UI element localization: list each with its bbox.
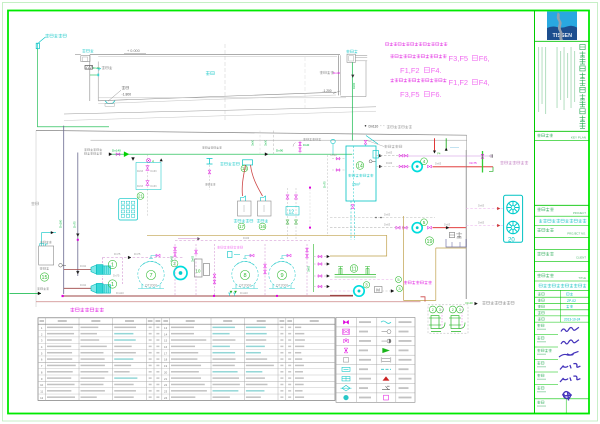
svg-text:F3,F5: F3,F5	[449, 54, 469, 63]
svg-text:Dn63: Dn63	[386, 161, 393, 165]
svg-text:Dn63: Dn63	[192, 255, 195, 262]
svg-text:Dn63: Dn63	[444, 222, 451, 226]
svg-text:Dn63: Dn63	[151, 170, 158, 173]
svg-text:Dn110: Dn110	[240, 291, 248, 295]
svg-text:15: 15	[42, 275, 48, 281]
svg-text:23: 23	[164, 389, 168, 393]
svg-text:15: 15	[164, 339, 168, 343]
svg-text:F1,F2: F1,F2	[449, 78, 469, 87]
svg-text:19: 19	[427, 239, 433, 245]
svg-text:Dn63: Dn63	[151, 185, 158, 188]
svg-text:22: 22	[164, 383, 168, 387]
svg-text:12: 12	[40, 396, 44, 400]
svg-text:-1.200: -1.200	[323, 89, 332, 93]
svg-text:Dn63: Dn63	[171, 255, 174, 262]
svg-text:F4.: F4.	[431, 66, 442, 75]
svg-text:M: M	[376, 287, 380, 292]
svg-text:Dn63: Dn63	[243, 236, 250, 240]
svg-text:14: 14	[164, 332, 168, 336]
svg-text:1: 1	[111, 262, 114, 268]
svg-text:7: 7	[149, 273, 152, 279]
svg-text:QT2000: QT2000	[276, 284, 288, 288]
svg-text:ZP-02: ZP-02	[567, 299, 576, 303]
svg-text:Dn75: Dn75	[114, 252, 121, 256]
svg-text:Dn50: Dn50	[352, 82, 356, 89]
svg-text:20: 20	[508, 237, 515, 243]
svg-text:16: 16	[260, 224, 266, 229]
svg-text:Dn40: Dn40	[303, 143, 310, 147]
svg-text:Dn63: Dn63	[386, 150, 393, 154]
svg-text:Dn63: Dn63	[308, 265, 311, 272]
svg-text:Dn75: Dn75	[73, 221, 77, 228]
svg-text:Dn63: Dn63	[478, 220, 485, 224]
svg-text:Dn63: Dn63	[384, 222, 391, 226]
svg-text:F6,: F6,	[479, 54, 490, 63]
svg-text:PROJECT: PROJECT	[573, 211, 586, 215]
svg-text:11: 11	[40, 389, 43, 393]
svg-text:Dn63: Dn63	[137, 170, 144, 173]
svg-text:F4: F4	[437, 151, 441, 155]
svg-text:Dn40: Dn40	[333, 71, 341, 75]
svg-text:9: 9	[280, 273, 283, 279]
svg-text:F1,F2: F1,F2	[400, 66, 420, 75]
svg-text:4: 4	[423, 159, 426, 164]
svg-text:Dn75: Dn75	[113, 273, 120, 277]
svg-text:Dn63: Dn63	[384, 212, 391, 216]
svg-text:2: 2	[173, 261, 176, 266]
svg-text:Dn75: Dn75	[323, 181, 327, 188]
svg-text:17: 17	[164, 351, 168, 355]
svg-text:10: 10	[40, 383, 44, 387]
svg-text:13: 13	[164, 326, 168, 330]
svg-text:-1.800: -1.800	[122, 93, 132, 97]
svg-text:Dn40: Dn40	[93, 66, 100, 70]
svg-text:+ 0.000: + 0.000	[127, 49, 140, 53]
svg-text:Dn140: Dn140	[112, 149, 121, 153]
svg-text:2013-10-24: 2013-10-24	[564, 317, 581, 321]
svg-text:Dn50: Dn50	[331, 154, 338, 157]
svg-text:Dn110: Dn110	[116, 291, 124, 295]
svg-text:2: 2	[452, 308, 454, 312]
svg-text:F6.: F6.	[431, 90, 442, 99]
svg-text:12: 12	[289, 209, 295, 215]
svg-text:Dn75: Dn75	[134, 252, 141, 256]
svg-text:24: 24	[164, 396, 168, 400]
svg-text:KEY PLAN: KEY PLAN	[571, 136, 586, 140]
svg-text:16: 16	[164, 345, 168, 349]
svg-text:Dn63: Dn63	[435, 161, 442, 165]
svg-text:21: 21	[138, 194, 144, 199]
svg-text:19: 19	[164, 364, 168, 368]
svg-text:14: 14	[357, 163, 363, 169]
svg-text:Dn50: Dn50	[252, 139, 255, 146]
svg-text:Dn63: Dn63	[478, 203, 485, 207]
svg-text:Dn160: Dn160	[59, 219, 63, 228]
svg-text:1: 1	[111, 282, 114, 288]
svg-text:Dn91: Dn91	[80, 283, 87, 287]
svg-text:5: 5	[423, 220, 426, 225]
svg-text:F4,: F4,	[479, 78, 490, 87]
svg-text:QT2000: QT2000	[239, 284, 251, 288]
svg-text:Dn110: Dn110	[369, 124, 379, 128]
svg-text:Dn90: Dn90	[276, 149, 284, 153]
svg-text:Dn50: Dn50	[265, 139, 268, 146]
svg-text:Dn91: Dn91	[80, 264, 87, 268]
svg-text:25m³: 25m³	[352, 183, 361, 187]
svg-text:PROJECT NO.: PROJECT NO.	[567, 232, 586, 236]
svg-text:2: 2	[432, 308, 434, 312]
svg-text:TITLE: TITLE	[578, 276, 586, 280]
svg-text:3: 3	[439, 308, 441, 312]
svg-text:F3,F5: F3,F5	[400, 90, 420, 99]
svg-text:CLIENT: CLIENT	[576, 255, 586, 259]
svg-text:Dn63: Dn63	[137, 185, 144, 188]
svg-text:20: 20	[164, 370, 168, 374]
svg-text:17: 17	[239, 224, 245, 229]
svg-text:Dn40: Dn40	[466, 301, 474, 305]
svg-text:21: 21	[164, 377, 168, 381]
svg-text:18: 18	[164, 358, 168, 362]
svg-text:10: 10	[196, 269, 201, 274]
svg-text:QT2000: QT2000	[145, 284, 157, 288]
svg-text:8: 8	[243, 273, 246, 279]
svg-text:Dn75: Dn75	[470, 161, 478, 165]
svg-text:3: 3	[459, 308, 461, 312]
svg-text:11: 11	[351, 266, 356, 272]
